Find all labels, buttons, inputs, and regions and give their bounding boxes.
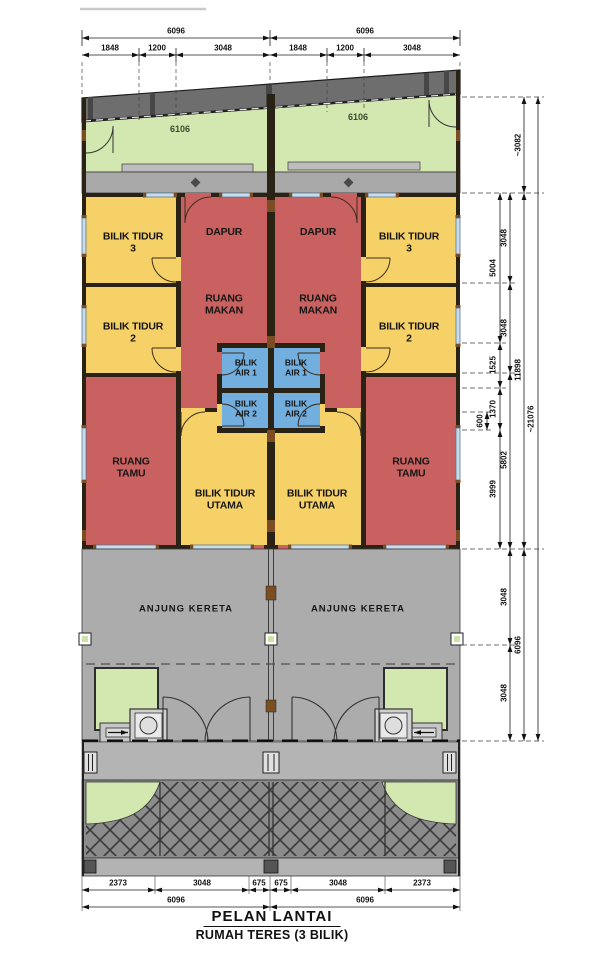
room-bilik-tidur-2-left (86, 287, 176, 373)
room-ruang-tamu-left (86, 377, 176, 545)
room-bilik-tidur-3-right (366, 197, 456, 283)
room-bilik-tidur-3-left (86, 197, 176, 283)
floor-plan-page: 6096 6096 1848 1200 3048 1848 1200 3048 … (0, 0, 600, 960)
room-ruang-tamu-right (366, 377, 456, 545)
drawing-title: PELAN LANTAI (204, 908, 341, 927)
drawing-subtitle: RUMAH TERES (3 BILIK) (196, 928, 349, 942)
room-bilik-air-2-left (222, 393, 268, 428)
room-bilik-air-1-left (222, 348, 268, 388)
floor-plan-drawing (0, 0, 600, 960)
room-bilik-tidur-2-right (366, 287, 456, 373)
room-bilik-air-1-right (274, 348, 320, 388)
room-bilik-air-2-right (274, 393, 320, 428)
